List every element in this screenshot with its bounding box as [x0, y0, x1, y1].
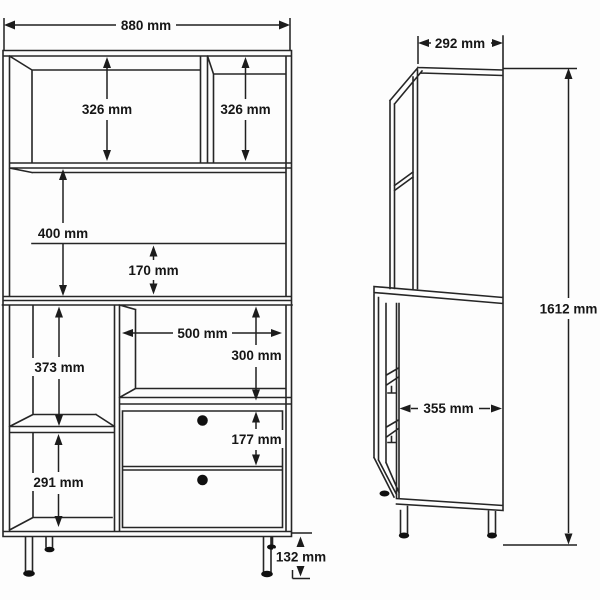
arrow-down-icon — [103, 150, 111, 161]
arrow-down-icon — [242, 150, 250, 161]
dim-total-height: 1612 mm — [503, 68, 600, 545]
cabinet-technical-drawing: 880 mm 326 mm 326 mm 40 — [0, 0, 600, 600]
dim-back-gap-label: 170 mm — [128, 263, 178, 278]
dim-back-gap: 170 mm — [126, 246, 181, 295]
side-dimensions: 292 mm 355 mm 1612 mm — [400, 34, 600, 545]
dim-top-right-opening-label: 326 mm — [220, 102, 270, 117]
arrow-down-icon — [59, 285, 67, 296]
arrow-down-icon — [150, 284, 158, 295]
dim-niche-width: 500 mm — [122, 324, 282, 342]
dim-drawer-height-label: 177 mm — [231, 432, 281, 447]
arrow-up-icon — [242, 57, 250, 68]
side-rear-foot — [487, 533, 497, 539]
dim-niche-width-label: 500 mm — [177, 326, 227, 341]
front-left-foot — [23, 570, 35, 576]
dim-bottom-depth: 355 mm — [400, 400, 503, 418]
arrow-left-icon — [418, 39, 429, 47]
dimension-drawing-canvas: 880 mm 326 mm 326 mm 40 — [0, 0, 600, 600]
dim-lower-left-top-opening: 373 mm — [32, 307, 87, 427]
arrow-up-icon — [252, 307, 260, 318]
arrow-right-icon — [279, 21, 290, 30]
dim-middle-opening-label: 400 mm — [38, 226, 88, 241]
dim-overall-width: 880 mm — [4, 16, 290, 50]
arrow-right-icon — [492, 39, 503, 47]
arrow-down-icon — [55, 516, 63, 527]
side-cabinet-outline — [374, 36, 503, 534]
dim-top-left-opening: 326 mm — [80, 57, 134, 161]
front-view: 880 mm 326 mm 326 mm 40 — [3, 16, 330, 579]
arrow-right-icon — [491, 405, 502, 413]
dim-middle-opening: 400 mm — [35, 169, 91, 296]
arrow-left-icon — [122, 329, 133, 337]
arrow-up-icon — [150, 246, 158, 257]
arrow-left-icon — [4, 21, 15, 30]
side-front-foot — [399, 533, 409, 539]
dim-top-right-opening: 326 mm — [219, 57, 273, 161]
arrow-down-icon — [565, 534, 573, 545]
drawer-knob-top — [197, 415, 208, 426]
dim-lower-left-top-opening-label: 373 mm — [34, 360, 84, 375]
side-view: 292 mm 355 mm 1612 mm — [374, 34, 600, 545]
arrow-up-icon — [55, 307, 63, 318]
arrow-up-icon — [252, 412, 260, 423]
front-cabinet-outline — [3, 51, 293, 572]
back-left-foot — [45, 547, 55, 553]
arrow-down-icon — [252, 455, 260, 466]
arrow-up-icon — [59, 169, 67, 180]
dim-lower-left-bottom-opening-label: 291 mm — [33, 475, 83, 490]
front-right-foot — [261, 571, 273, 577]
front-feet — [23, 544, 276, 577]
arrow-down-icon — [297, 566, 305, 577]
arrow-left-icon — [400, 405, 411, 413]
drawer-knobs — [197, 415, 208, 485]
arrow-down-icon — [55, 415, 63, 426]
dim-top-depth-label: 292 mm — [435, 36, 485, 51]
side-far-foot — [380, 491, 390, 497]
dim-leg-height: 132 mm — [273, 533, 329, 579]
dim-total-height-label: 1612 mm — [540, 302, 598, 317]
dim-drawer-height: 177 mm — [228, 412, 285, 466]
drawer-knob-bottom — [197, 475, 208, 486]
dim-top-left-opening-label: 326 mm — [82, 102, 132, 117]
arrow-up-icon — [103, 57, 111, 68]
dim-bottom-depth-label: 355 mm — [423, 401, 473, 416]
arrow-up-icon — [297, 537, 305, 548]
arrow-right-icon — [271, 329, 282, 337]
arrow-up-icon — [55, 434, 63, 445]
arrow-up-icon — [565, 68, 573, 79]
dim-lower-left-bottom-opening: 291 mm — [31, 434, 86, 527]
dim-niche-height-label: 300 mm — [231, 348, 281, 363]
arrow-down-icon — [252, 390, 260, 401]
dim-overall-width-label: 880 mm — [121, 18, 171, 33]
dim-niche-height: 300 mm — [228, 307, 285, 401]
dim-top-depth: 292 mm — [418, 34, 503, 64]
dim-leg-height-label: 132 mm — [276, 550, 326, 565]
